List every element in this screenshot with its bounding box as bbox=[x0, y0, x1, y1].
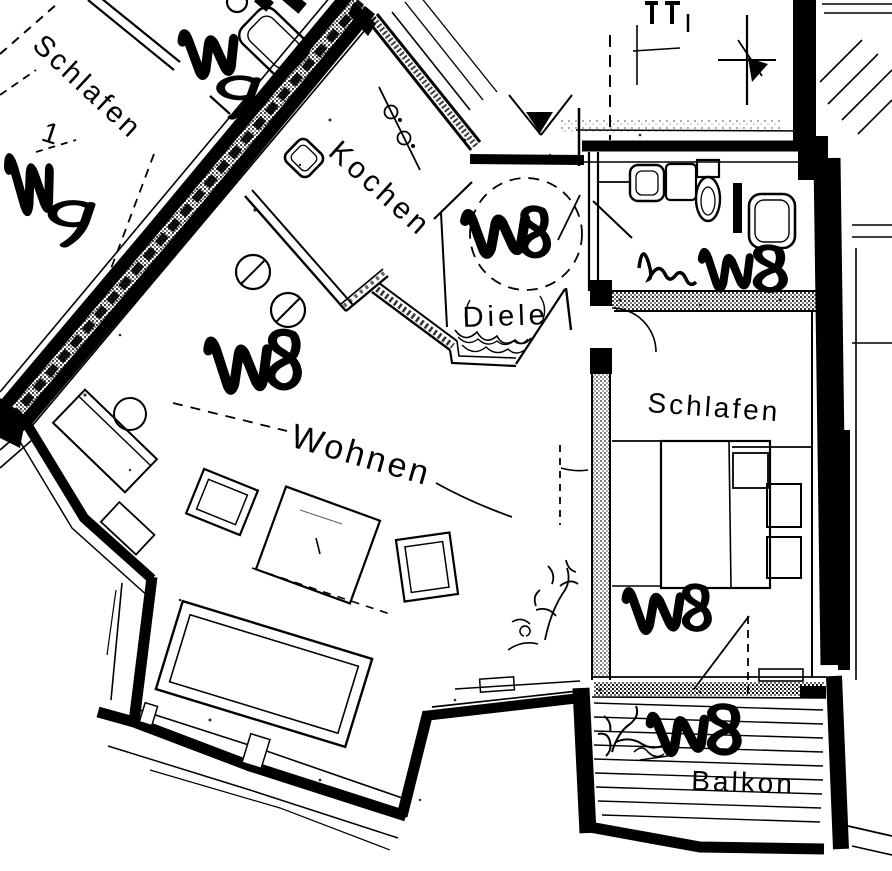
svg-text:Balkon: Balkon bbox=[691, 765, 796, 800]
svg-text:Diele: Diele bbox=[462, 299, 549, 334]
